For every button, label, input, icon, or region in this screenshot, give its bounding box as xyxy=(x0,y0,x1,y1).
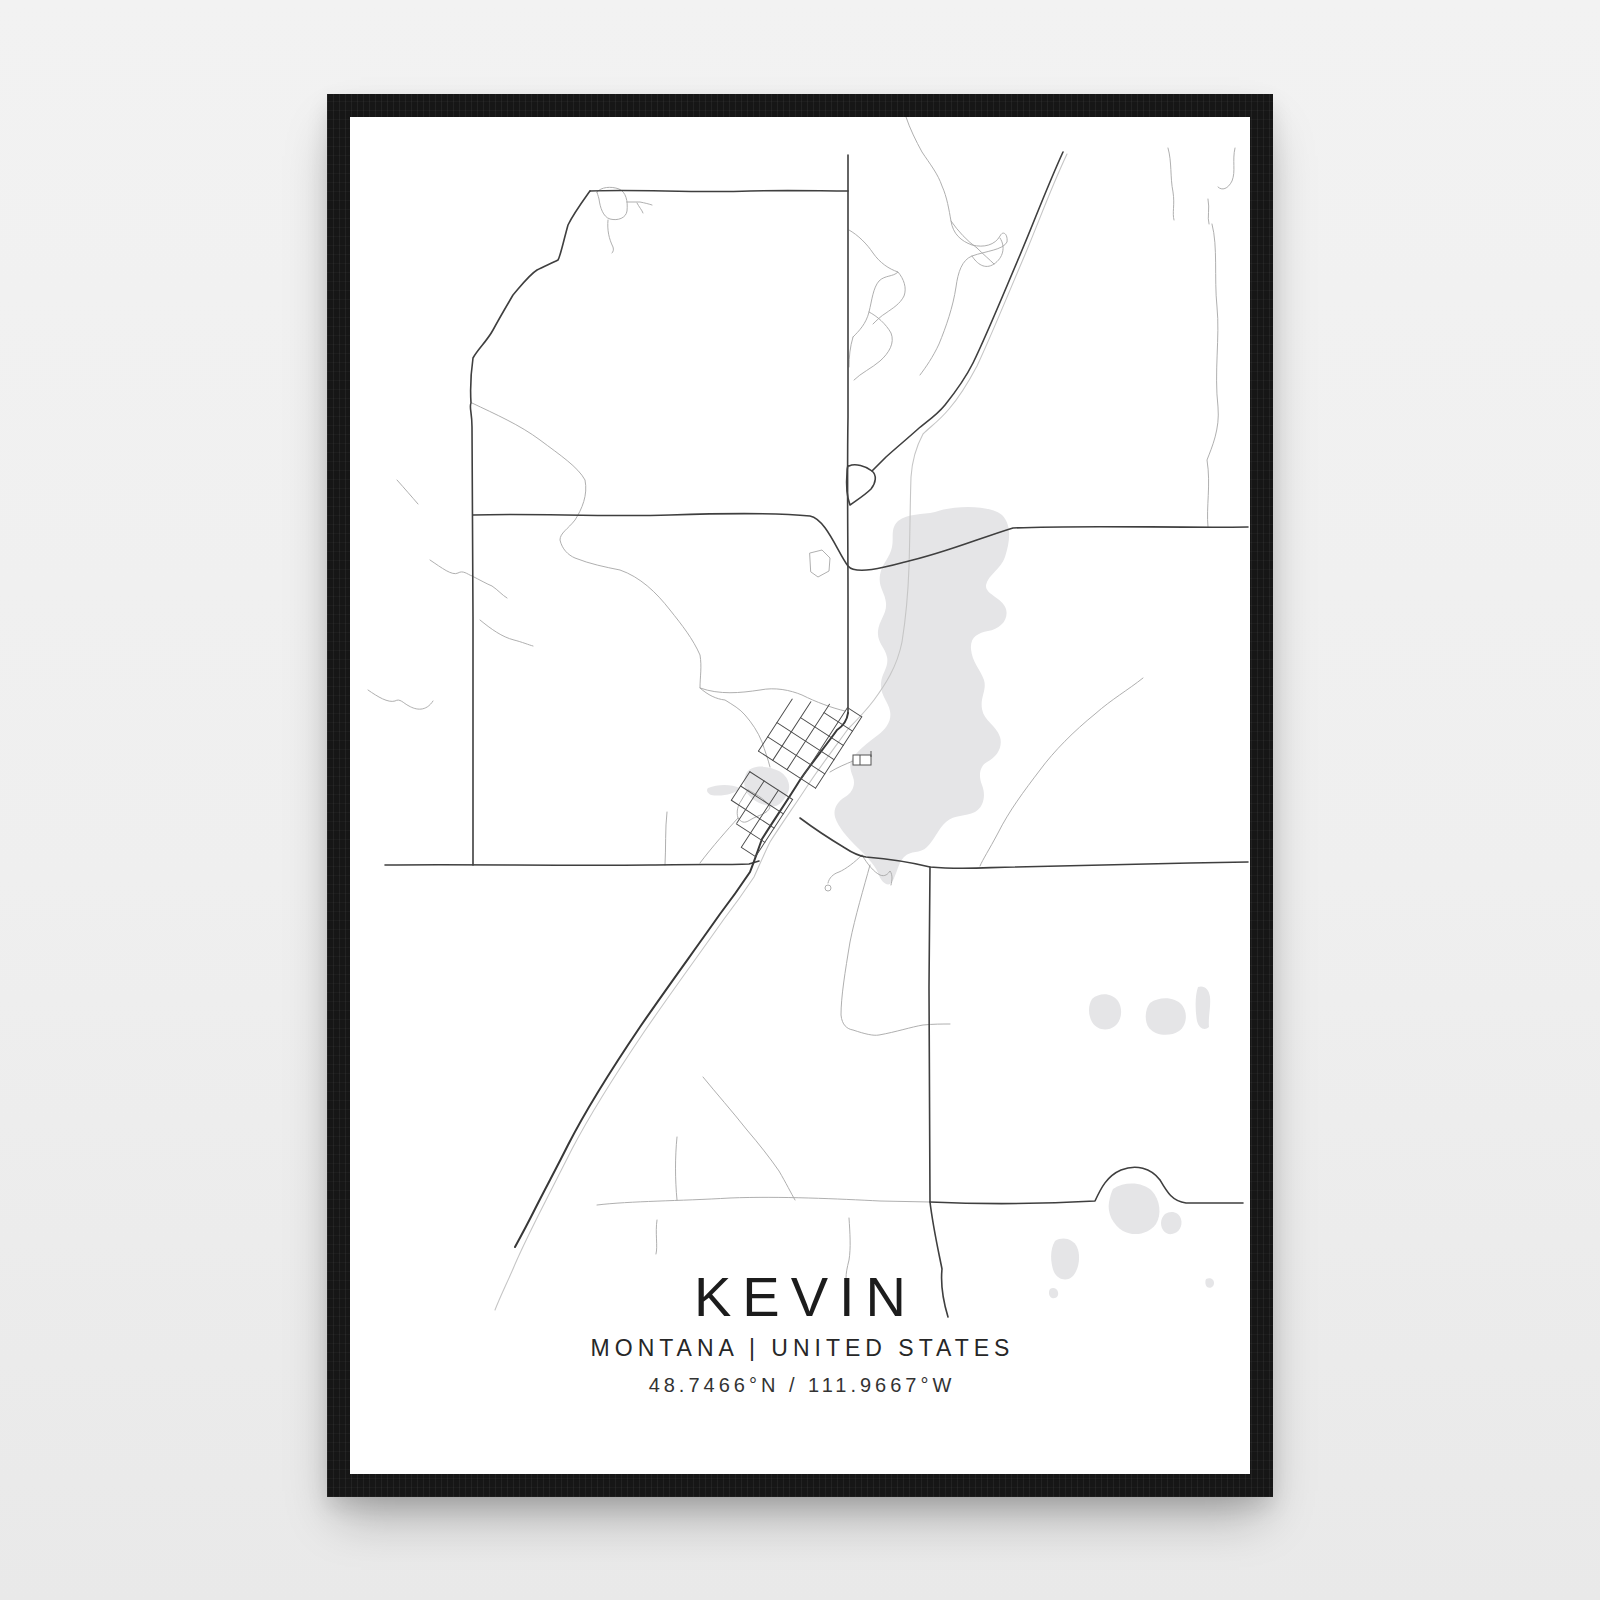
southeast-road-with-pond-detour xyxy=(930,1167,1243,1203)
east-vertical-road xyxy=(929,867,948,1317)
country-road xyxy=(597,1197,930,1205)
pond-shape xyxy=(1089,994,1121,1029)
creek-line xyxy=(849,337,853,367)
northwest-boundary-road xyxy=(470,191,590,865)
north-horizontal-road xyxy=(590,190,848,191)
pond-shape xyxy=(1109,1184,1160,1235)
minor-road-layer xyxy=(368,117,1235,1278)
pond-shape xyxy=(1146,998,1186,1035)
creek-line xyxy=(703,1077,795,1200)
middle-horizontal-road xyxy=(473,514,1248,571)
track-road xyxy=(656,1220,657,1254)
creek-line xyxy=(849,230,905,380)
pond-shape xyxy=(1196,986,1211,1029)
small-polygon-road xyxy=(810,550,830,577)
poster-title: KEVIN xyxy=(350,1265,1250,1329)
town-grid xyxy=(709,680,861,864)
stub-road xyxy=(608,220,614,253)
creek-line xyxy=(980,678,1143,866)
teardrop-loop-road xyxy=(847,465,876,505)
creek-line xyxy=(368,690,433,709)
major-road-layer xyxy=(385,152,1248,1317)
stub-road xyxy=(627,202,652,213)
main-street-diagonal xyxy=(515,713,848,1247)
building-access-road xyxy=(830,761,853,772)
creek-line xyxy=(480,620,533,646)
poster-subtitle: MONTANA | UNITED STATES xyxy=(350,1335,1250,1362)
creek-line xyxy=(1168,148,1174,220)
creek-line xyxy=(397,480,418,504)
block-loop-road xyxy=(597,187,627,219)
creek-line xyxy=(1218,148,1235,189)
creek-line xyxy=(1208,199,1209,224)
south-horizontal-road-west xyxy=(385,861,759,865)
lake-shape xyxy=(834,507,1009,884)
pond-shape xyxy=(1161,1212,1182,1234)
poster-caption: KEVIN MONTANA | UNITED STATES 48.7466°N … xyxy=(350,1265,1250,1397)
creek-line xyxy=(1207,224,1218,527)
creek-line xyxy=(951,221,1003,266)
product-photo-scene: KEVIN MONTANA | UNITED STATES 48.7466°N … xyxy=(0,0,1600,1600)
creek-line xyxy=(430,560,507,598)
creek-line xyxy=(472,403,770,767)
creek-line xyxy=(906,117,1007,375)
creek-line xyxy=(665,812,667,865)
picture-frame: KEVIN MONTANA | UNITED STATES 48.7466°N … xyxy=(327,94,1273,1497)
track-road xyxy=(828,855,862,883)
creek-line xyxy=(676,1137,678,1200)
highway-diagonal xyxy=(872,152,1063,471)
track-road xyxy=(841,865,950,1035)
poster-paper: KEVIN MONTANA | UNITED STATES 48.7466°N … xyxy=(350,117,1250,1474)
poster-coordinates: 48.7466°N / 111.9667°W xyxy=(350,1374,1250,1397)
pond-marker xyxy=(825,885,831,891)
water-layer xyxy=(707,507,1214,1298)
